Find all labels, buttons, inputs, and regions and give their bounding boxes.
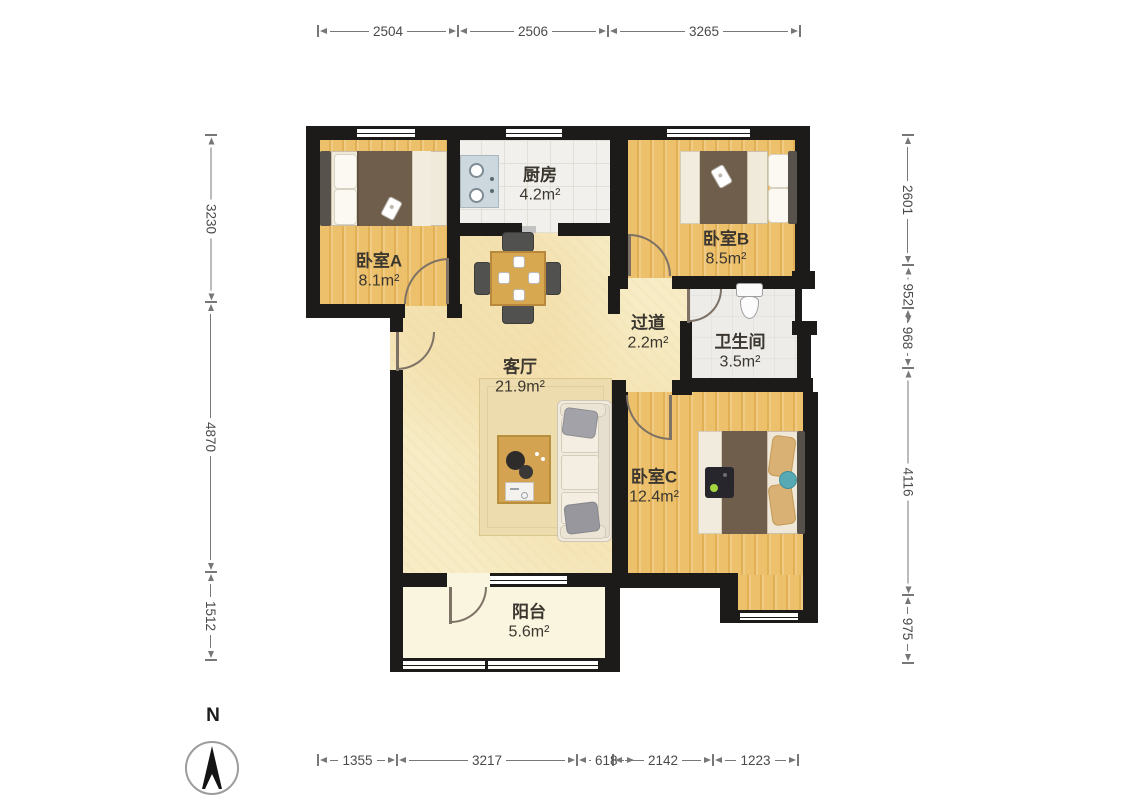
arrowhead-icon (579, 757, 586, 763)
wall-bedroom-c-bottom-mid (720, 610, 740, 623)
room-name: 卧室C (629, 468, 679, 488)
dimension-bottom-4: 1223 (715, 752, 796, 768)
arrowhead-icon (320, 757, 327, 763)
room-name: 卧室B (703, 230, 749, 250)
arrowhead-icon (449, 28, 456, 34)
wall-bedroom-c-top-right (672, 380, 692, 395)
room-area: 3.5m² (715, 353, 766, 372)
wall-bathroom-right-thin (795, 289, 802, 323)
place-setting (513, 289, 525, 301)
room-label-balcony: 阳台 5.6m² (509, 603, 550, 642)
bedroom-b-window (667, 126, 750, 140)
compass: N (183, 705, 243, 797)
dimension-label: 968 (901, 326, 916, 351)
room-name: 过道 (628, 314, 669, 334)
wall-bedroom-c-right (803, 392, 818, 623)
arrowhead-icon (905, 597, 911, 604)
room-area: 21.9m² (495, 378, 545, 397)
place-setting (513, 256, 525, 268)
arrowhead-icon (715, 757, 722, 763)
arrowhead-icon (905, 586, 911, 593)
wall-bathroom-bottom (680, 378, 813, 392)
dining-chair (502, 232, 534, 252)
arrowhead-icon (905, 359, 911, 366)
dining-chair (474, 262, 491, 295)
dimension-right-3: 4116 (900, 370, 916, 593)
room-name: 阳台 (509, 603, 550, 623)
dimension-right-2: 968 (900, 310, 916, 366)
dimension-label: 3265 (688, 24, 720, 39)
bed-pillow (768, 154, 790, 188)
bed-runner (412, 151, 431, 226)
place-setting (498, 272, 510, 284)
room-area: 8.5m² (703, 250, 749, 269)
dining-table (490, 251, 546, 306)
wall-entry-upper (390, 318, 403, 332)
bedroom-b-bed (680, 150, 797, 225)
arrowhead-icon (704, 757, 711, 763)
bedroom-c-bed (698, 430, 805, 535)
wall-notch-bottom (792, 321, 817, 335)
room-name: 卧室A (356, 252, 402, 272)
dimension-bottom-1: 3217 (399, 752, 575, 768)
arrowhead-icon (208, 574, 214, 581)
arrowhead-icon (208, 651, 214, 658)
dimension-label: 1223 (739, 753, 771, 768)
room-area: 4.2m² (520, 186, 561, 205)
round-pillow (779, 471, 797, 489)
dining-chair (544, 262, 561, 295)
stove-knob (490, 177, 494, 181)
wall-balcony-left (390, 563, 403, 672)
toilet (736, 283, 763, 320)
dimension-label: 975 (901, 617, 916, 642)
arrowhead-icon (388, 757, 395, 763)
arrowhead-icon (615, 757, 622, 763)
dimension-label: 2504 (372, 24, 404, 39)
wall-notch-top (792, 271, 815, 289)
wall-hallway-stub (608, 276, 620, 314)
arrowhead-icon (905, 654, 911, 661)
arrowhead-icon (320, 28, 327, 34)
bedroom-c-floor-extension (736, 575, 805, 613)
arrowhead-icon (905, 267, 911, 274)
wall-kitchen-bedroom-b-divider (610, 138, 628, 278)
dimension-right-0: 2601 (900, 137, 916, 263)
dimension-left-0: 3230 (203, 137, 219, 300)
room-name: 厨房 (520, 166, 561, 186)
stove-burner (469, 163, 484, 178)
dimension-label: 2601 (901, 184, 916, 216)
bed-blanket (700, 151, 747, 224)
wall-entry-lower (390, 370, 403, 575)
wall-bedroom-a-bottom (306, 304, 405, 318)
room-label-bedroom-b: 卧室B 8.5m² (703, 230, 749, 269)
sofa (557, 400, 612, 542)
dimension-label: 1512 (204, 600, 219, 632)
balcony-top-window (490, 573, 567, 587)
toilet-tank (736, 283, 763, 297)
room-area: 5.6m² (509, 623, 550, 642)
dimension-left-1: 4870 (203, 304, 219, 570)
table-dot (541, 457, 545, 461)
bed-runner (680, 151, 700, 224)
arrowhead-icon (599, 28, 606, 34)
bed-headboard (797, 431, 805, 534)
place-setting (528, 272, 540, 284)
dimension-right-4: 975 (900, 597, 916, 661)
table-tray (505, 482, 534, 501)
dimension-right-1: 952 (900, 267, 916, 306)
wall-bedroom-c-bottom-corner (798, 610, 818, 623)
compass-needle-notch (205, 774, 219, 789)
dimension-label: 4870 (204, 421, 219, 453)
coffee-table (497, 435, 551, 504)
dimension-top-1: 2506 (460, 23, 606, 39)
arrowhead-icon (208, 293, 214, 300)
dimension-label: 2506 (517, 24, 549, 39)
balcony-window-mullion (485, 658, 488, 672)
dimension-label: 1355 (341, 753, 373, 768)
dimension-top-2: 3265 (610, 23, 798, 39)
bedroom-a-bed (320, 150, 447, 227)
bedroom-c-window (740, 610, 798, 623)
room-label-living: 客厅 21.9m² (495, 358, 545, 397)
dimension-bottom-0: 1355 (320, 752, 395, 768)
dining-chair (502, 304, 534, 324)
dining-set (474, 232, 562, 326)
floor-plan-canvas: 厨房 4.2m² 卧室A 8.1m² 卧室B 8.5m² 过道 2.2m² 卫生… (0, 0, 1125, 800)
room-label-bedroom-a: 卧室A 8.1m² (356, 252, 402, 291)
arrowhead-icon (399, 757, 406, 763)
wall-left (306, 126, 320, 318)
wall-bedroom-a-bottom-post (447, 304, 462, 318)
balcony-bottom-window (403, 658, 598, 672)
arrowhead-icon (905, 137, 911, 144)
stove-burner (469, 188, 484, 203)
dimension-label: 3217 (471, 753, 503, 768)
room-label-kitchen: 厨房 4.2m² (520, 166, 561, 205)
wall-bedroom-b-right (795, 138, 810, 276)
room-name: 卫生间 (715, 333, 766, 353)
arrowhead-icon (208, 304, 214, 311)
sofa-throw-pillow (563, 501, 600, 535)
wall-kitchen-bottom-right (558, 223, 612, 236)
dimension-bottom-2: 618 (579, 752, 611, 768)
wall-balcony-right (605, 588, 620, 672)
bed-pillow (334, 154, 357, 189)
tablet-device (705, 467, 734, 498)
kitchen-window (506, 126, 562, 140)
arrowhead-icon (791, 28, 798, 34)
toilet-bowl (740, 296, 759, 319)
bed-headboard (788, 151, 797, 224)
arrowhead-icon (789, 757, 796, 763)
arrowhead-icon (905, 310, 911, 317)
arrowhead-icon (460, 28, 467, 34)
dimension-label: 3230 (204, 202, 219, 234)
room-label-bathroom: 卫生间 3.5m² (715, 333, 766, 372)
arrowhead-icon (208, 563, 214, 570)
room-area: 2.2m² (628, 334, 669, 353)
room-area: 12.4m² (629, 488, 679, 507)
bedroom-a-window (357, 126, 415, 140)
compass-north-label: N (193, 705, 233, 727)
arrowhead-icon (905, 256, 911, 263)
dimension-label: 2142 (647, 753, 679, 768)
bed-pillow (768, 188, 790, 223)
dimension-top-0: 2504 (320, 23, 456, 39)
dimension-label: 4116 (901, 466, 916, 497)
room-name: 客厅 (495, 358, 545, 378)
arrowhead-icon (208, 137, 214, 144)
arrowhead-icon (568, 757, 575, 763)
sofa-cushion (561, 455, 599, 490)
sofa-backrest (598, 404, 610, 538)
wall-bedroom-b-bottom-right (672, 276, 795, 289)
arrowhead-icon (610, 28, 617, 34)
room-label-bedroom-c: 卧室C 12.4m² (629, 468, 679, 507)
bed-headboard (320, 151, 331, 226)
wall-bedroom-c-bottom-left (605, 573, 738, 588)
dimension-left-2: 1512 (203, 574, 219, 658)
arrowhead-icon (905, 370, 911, 377)
wall-living-bedroom-c-divider (612, 392, 628, 575)
sofa-throw-pillow (561, 407, 599, 439)
bed-mattress (747, 151, 768, 224)
kitchen-stove (460, 155, 499, 208)
dimension-bottom-3: 2142 (615, 752, 711, 768)
dimension-label: 952 (901, 282, 916, 307)
room-area: 8.1m² (356, 272, 402, 291)
teacup (519, 465, 533, 479)
room-label-hallway: 过道 2.2m² (628, 314, 669, 353)
stove-knob (490, 189, 494, 193)
bed-pillow (334, 189, 357, 225)
table-dot (535, 452, 539, 456)
